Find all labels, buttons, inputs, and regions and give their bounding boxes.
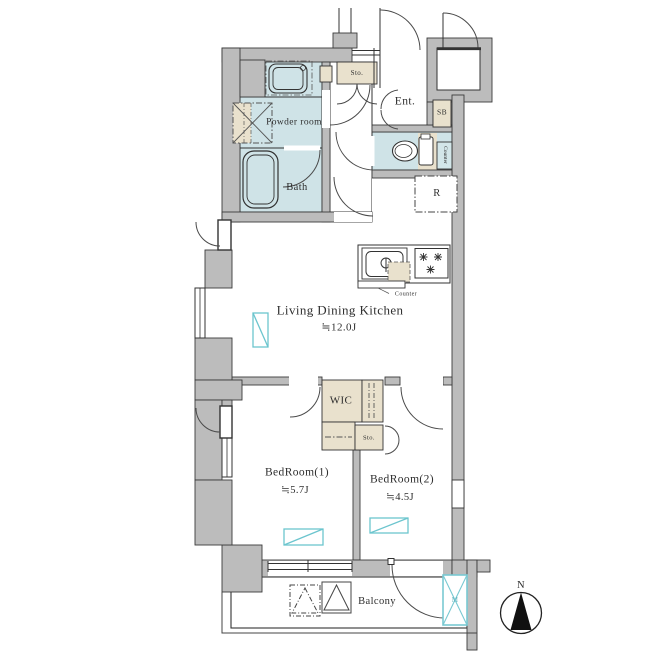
washer-nook-floor xyxy=(265,60,322,97)
east-wall-notch xyxy=(452,480,464,508)
wall-south-east-b xyxy=(477,560,490,572)
gap-powder-door xyxy=(322,90,330,128)
wall-shaft xyxy=(333,33,357,48)
ac-unit-bedroom1 xyxy=(284,529,323,545)
wall-left-c xyxy=(195,380,242,400)
wall-left-d xyxy=(195,400,222,480)
wall-hall-west xyxy=(322,62,330,222)
wall-bedrooms-top-c xyxy=(443,377,452,385)
compass xyxy=(501,593,542,634)
stove xyxy=(415,249,448,279)
wic-lower xyxy=(322,422,355,450)
entrance-floor xyxy=(374,48,427,125)
wall-balcony-east xyxy=(467,560,477,650)
label-bath: Bath xyxy=(286,182,307,194)
wall-left-b xyxy=(195,338,232,380)
wall-left-a xyxy=(205,250,232,288)
bath-floor xyxy=(240,148,322,212)
label-storage-wic: Sto. xyxy=(363,434,375,441)
gap-ldk-door xyxy=(334,212,372,222)
label-bedroom2: BedRoom(2) xyxy=(370,473,434,486)
gap-bedroom1-door xyxy=(289,376,318,386)
gap-balcony-door xyxy=(390,561,443,576)
ac-unit-bedroom2 xyxy=(370,518,408,533)
wall-left-f xyxy=(195,480,232,545)
label-entrance: Ent. xyxy=(395,95,415,108)
label-bedroom1: BedRoom(1) xyxy=(265,466,329,479)
label-balcony: Balcony xyxy=(358,596,396,608)
kitchen-counter-lip xyxy=(358,281,405,288)
wall-powder-corner xyxy=(240,60,265,97)
label-wic: WIC xyxy=(330,395,353,408)
label-bedroom1-size: ≒5.7J xyxy=(281,485,309,497)
label-refrigerator: R xyxy=(433,188,440,200)
wall-sb-filler xyxy=(427,102,433,125)
label-powder-room: Powder room xyxy=(265,118,323,129)
ac-unit-ldk xyxy=(253,313,268,347)
kitchen-counter-patch xyxy=(388,262,410,282)
wic-hanger-strip xyxy=(362,380,383,422)
label-compass-north: N xyxy=(517,580,525,592)
label-shoe-box: SB xyxy=(437,109,447,118)
gap-bath-door xyxy=(284,146,320,151)
wall-bottom-left-block xyxy=(222,545,262,592)
gap-bedroom2-door xyxy=(401,376,443,386)
niche-inside xyxy=(437,48,480,90)
label-bedroom2-size: ≒4.5J xyxy=(386,492,414,504)
floorplan-canvas: Powder room Bath Sto. Ent. SB Counter R … xyxy=(0,0,653,653)
label-meter-box: M xyxy=(452,596,459,604)
label-ldk-size: ≒12.0J xyxy=(321,322,356,335)
label-kitchen-counter: Counter xyxy=(395,292,417,299)
gap-toilet-door xyxy=(370,136,375,166)
bedroom1-left-door-leaf xyxy=(220,406,232,438)
washer-side-tab xyxy=(320,66,332,82)
balcony-floor xyxy=(231,577,467,628)
entry-door-arc xyxy=(380,10,420,50)
label-ldk: Living Dining Kitchen xyxy=(277,304,404,319)
balcony-door-leaf xyxy=(388,559,394,565)
label-storage-top: Sto. xyxy=(351,69,364,77)
label-toilet-counter: Counter xyxy=(441,146,447,164)
wall-bedrooms-top-b xyxy=(385,377,400,385)
wall-bedroom-partition xyxy=(353,450,360,560)
